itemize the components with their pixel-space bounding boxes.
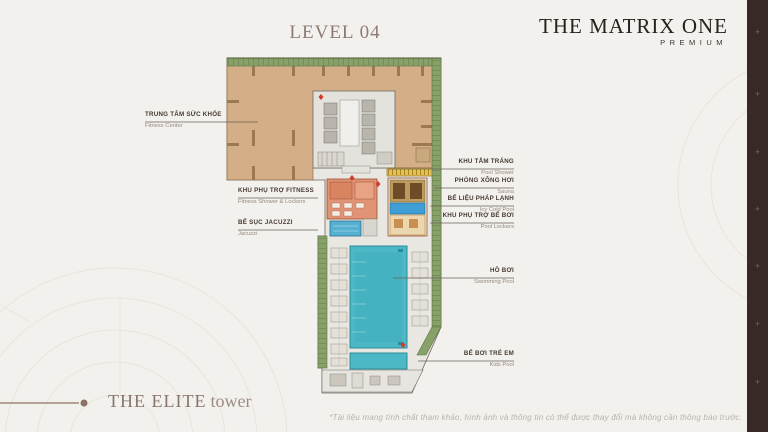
label-sauna: PHÒNG XÔNG HƠI Sauna bbox=[388, 178, 514, 195]
label-vi: BỂ BƠI TRẺ EM bbox=[388, 351, 514, 359]
sparkle-icon: + bbox=[747, 262, 768, 271]
label-en: Pool Shower bbox=[388, 171, 514, 177]
locker-rooms-area bbox=[327, 179, 377, 219]
page: LEVEL 04 THE MATRIX ONE PREMIUM TRUNG TÂ… bbox=[0, 0, 768, 432]
label-fitness-support: KHU PHỤ TRỢ FITNESS Fitness Shower & Loc… bbox=[238, 188, 320, 205]
label-en: Pool Lockers bbox=[388, 225, 514, 231]
label-en: Jacuzzi bbox=[238, 232, 320, 238]
brand-name: THE MATRIX ONE bbox=[539, 15, 728, 37]
sparkle-icon: + bbox=[747, 320, 768, 329]
tower-title: THE ELITEtower bbox=[108, 391, 251, 411]
page-title: LEVEL 04 bbox=[250, 22, 420, 44]
label-pool-shower: KHU TẮM TRÁNG Pool Shower bbox=[388, 159, 514, 176]
label-icy-cold-pool: BỂ LIỆU PHÁP LẠNH Icy Cold Pool bbox=[388, 196, 514, 213]
label-en: Fitness Shower & Lockers bbox=[238, 200, 320, 206]
sparkle-icon: + bbox=[747, 90, 768, 99]
footer-rule bbox=[0, 400, 88, 407]
label-jacuzzi: BỂ SỤC JACUZZI Jacuzzi bbox=[238, 220, 320, 237]
sparkle-icon: + bbox=[747, 378, 768, 387]
brand-logo: THE MATRIX ONE PREMIUM bbox=[539, 15, 728, 47]
bullet-dot-icon bbox=[81, 400, 88, 407]
sparkle-icon: + bbox=[747, 28, 768, 37]
label-vi: KHU PHỤ TRỢ BỂ BƠI bbox=[388, 213, 514, 221]
floorplan-svg bbox=[0, 0, 768, 432]
label-vi: BỂ LIỆU PHÁP LẠNH bbox=[388, 196, 514, 204]
tower-suffix: tower bbox=[210, 391, 251, 411]
label-swimming-pool: HỒ BƠI Swimming Pool bbox=[388, 268, 514, 285]
core-area bbox=[313, 91, 395, 173]
brand-tagline: PREMIUM bbox=[539, 38, 728, 47]
label-vi: KHU PHỤ TRỢ FITNESS bbox=[238, 188, 320, 196]
jacuzzi-shape bbox=[330, 219, 377, 236]
label-en: Fitness Center bbox=[145, 124, 260, 130]
swimming-pool-shape bbox=[350, 246, 407, 348]
label-kids-pool: BỂ BƠI TRẺ EM Kids Pool bbox=[388, 351, 514, 368]
label-vi: KHU TẮM TRÁNG bbox=[388, 159, 514, 167]
label-pool-lockers: KHU PHỤ TRỢ BỂ BƠI Pool Lockers bbox=[388, 213, 514, 230]
sparkle-icon: + bbox=[747, 148, 768, 157]
tower-name: THE ELITE bbox=[108, 391, 206, 411]
sparkle-icon: + bbox=[747, 205, 768, 214]
label-vi: PHÒNG XÔNG HƠI bbox=[388, 178, 514, 186]
label-vi: HỒ BƠI bbox=[388, 268, 514, 276]
label-vi: BỂ SỤC JACUZZI bbox=[238, 220, 320, 228]
label-en: Kids Pool bbox=[388, 363, 514, 369]
bottom-rooms-area bbox=[322, 370, 423, 392]
side-panel: + + + + + + + bbox=[747, 0, 768, 432]
label-fitness-center: TRUNG TÂM SỨC KHỎE Fitness Center bbox=[145, 112, 260, 129]
disclaimer-text: *Tài liệu mang tính chất tham khảo, hình… bbox=[329, 413, 742, 422]
label-en: Swimming Pool bbox=[388, 280, 514, 286]
label-vi: TRUNG TÂM SỨC KHỎE bbox=[145, 112, 260, 120]
